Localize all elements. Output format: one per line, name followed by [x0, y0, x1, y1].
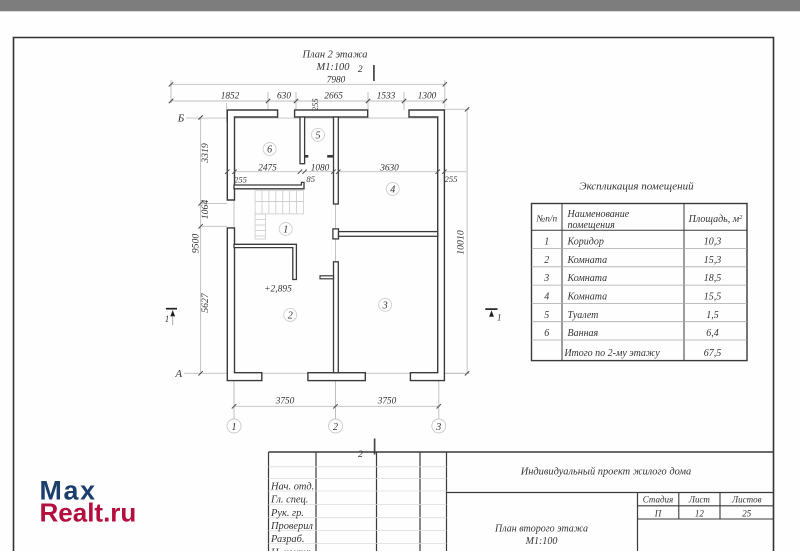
svg-text:2: 2 [288, 311, 293, 322]
svg-text:А: А [174, 368, 182, 380]
svg-text:Ванная: Ванная [568, 328, 599, 339]
svg-text:18,5: 18,5 [704, 273, 722, 284]
svg-text:4: 4 [390, 185, 395, 196]
svg-text:1: 1 [497, 313, 502, 323]
svg-text:255: 255 [445, 174, 459, 184]
svg-text:1533: 1533 [377, 92, 396, 102]
svg-text:6,4: 6,4 [706, 328, 719, 339]
svg-text:5: 5 [544, 310, 549, 321]
svg-text:6: 6 [267, 145, 272, 156]
svg-text:255: 255 [310, 98, 320, 111]
svg-text:15,3: 15,3 [704, 255, 722, 266]
svg-text:3750: 3750 [377, 397, 397, 407]
svg-text:10,3: 10,3 [704, 237, 722, 248]
svg-text:9500: 9500 [191, 234, 202, 254]
svg-text:3630: 3630 [379, 164, 399, 174]
svg-text:1: 1 [544, 237, 549, 248]
svg-text:1: 1 [232, 422, 237, 433]
svg-text:1064: 1064 [200, 200, 211, 220]
svg-text:Стадия: Стадия [643, 495, 673, 505]
svg-text:7980: 7980 [327, 76, 346, 86]
svg-text:2665: 2665 [324, 92, 343, 102]
svg-text:1: 1 [283, 225, 288, 236]
svg-text:помещения: помещения [568, 220, 616, 231]
svg-text:План 2 этажа: План 2 этажа [302, 50, 368, 61]
svg-text:Н. контр.: Н. контр. [270, 547, 314, 551]
svg-text:15,5: 15,5 [704, 292, 722, 303]
svg-text:2: 2 [333, 422, 338, 433]
svg-text:М1:100: М1:100 [525, 536, 558, 547]
svg-text:Комната: Комната [567, 292, 608, 303]
svg-text:6: 6 [544, 328, 549, 339]
svg-text:Площадь, м2: Площадь, м2 [688, 214, 744, 225]
svg-text:Наименование: Наименование [567, 209, 630, 220]
svg-text:Нач. отд.: Нач. отд. [270, 481, 314, 492]
svg-text:5627: 5627 [200, 292, 211, 313]
svg-text:П: П [654, 508, 662, 518]
svg-text:Проверил: Проверил [270, 521, 313, 532]
svg-text:План второго этажа: План второго этажа [494, 524, 588, 535]
svg-text:1080: 1080 [311, 164, 330, 174]
svg-text:67,5: 67,5 [704, 348, 722, 359]
svg-text:2: 2 [358, 65, 363, 75]
svg-text:1: 1 [165, 314, 170, 324]
svg-text:Туалет: Туалет [568, 310, 599, 321]
svg-text:3: 3 [382, 301, 388, 312]
svg-text:Realt.ru: Realt.ru [40, 498, 137, 528]
svg-text:25: 25 [742, 508, 752, 518]
svg-text:Экспликация помещений: Экспликация помещений [579, 181, 694, 193]
svg-text:Гл. спец.: Гл. спец. [270, 495, 308, 506]
svg-text:1,5: 1,5 [706, 310, 719, 321]
svg-text:Б: Б [177, 112, 185, 124]
svg-text:3: 3 [435, 422, 441, 433]
svg-text:Лист: Лист [688, 495, 711, 505]
svg-text:Комната: Комната [567, 273, 608, 284]
svg-text:85: 85 [306, 174, 315, 184]
svg-text:5: 5 [316, 131, 321, 142]
svg-text:Индивидуальный проект жилого д: Индивидуальный проект жилого дома [520, 467, 691, 478]
svg-text:255: 255 [234, 175, 248, 185]
svg-text:Итого по 2-му этажу: Итого по 2-му этажу [563, 348, 660, 359]
svg-text:10010: 10010 [456, 230, 467, 255]
svg-text:1300: 1300 [418, 92, 437, 102]
svg-text:4: 4 [544, 292, 549, 303]
svg-text:2: 2 [544, 255, 549, 266]
svg-text:3319: 3319 [200, 143, 211, 164]
svg-text:3750: 3750 [275, 397, 295, 407]
svg-text:Листов: Листов [731, 495, 762, 505]
svg-text:Комната: Комната [567, 255, 608, 266]
svg-text:2475: 2475 [258, 164, 277, 174]
svg-text:3: 3 [543, 273, 549, 284]
svg-text:12: 12 [695, 508, 705, 518]
svg-text:Коридор: Коридор [567, 237, 604, 248]
svg-text:М1:100: М1:100 [316, 62, 351, 73]
svg-text:630: 630 [277, 92, 291, 102]
svg-text:Рук. гр.: Рук. гр. [270, 508, 304, 519]
svg-text:Разраб.: Разраб. [270, 534, 304, 545]
svg-text:№п/п: №п/п [535, 215, 557, 225]
svg-text:+2,895: +2,895 [264, 285, 292, 295]
svg-text:1852: 1852 [221, 92, 240, 102]
